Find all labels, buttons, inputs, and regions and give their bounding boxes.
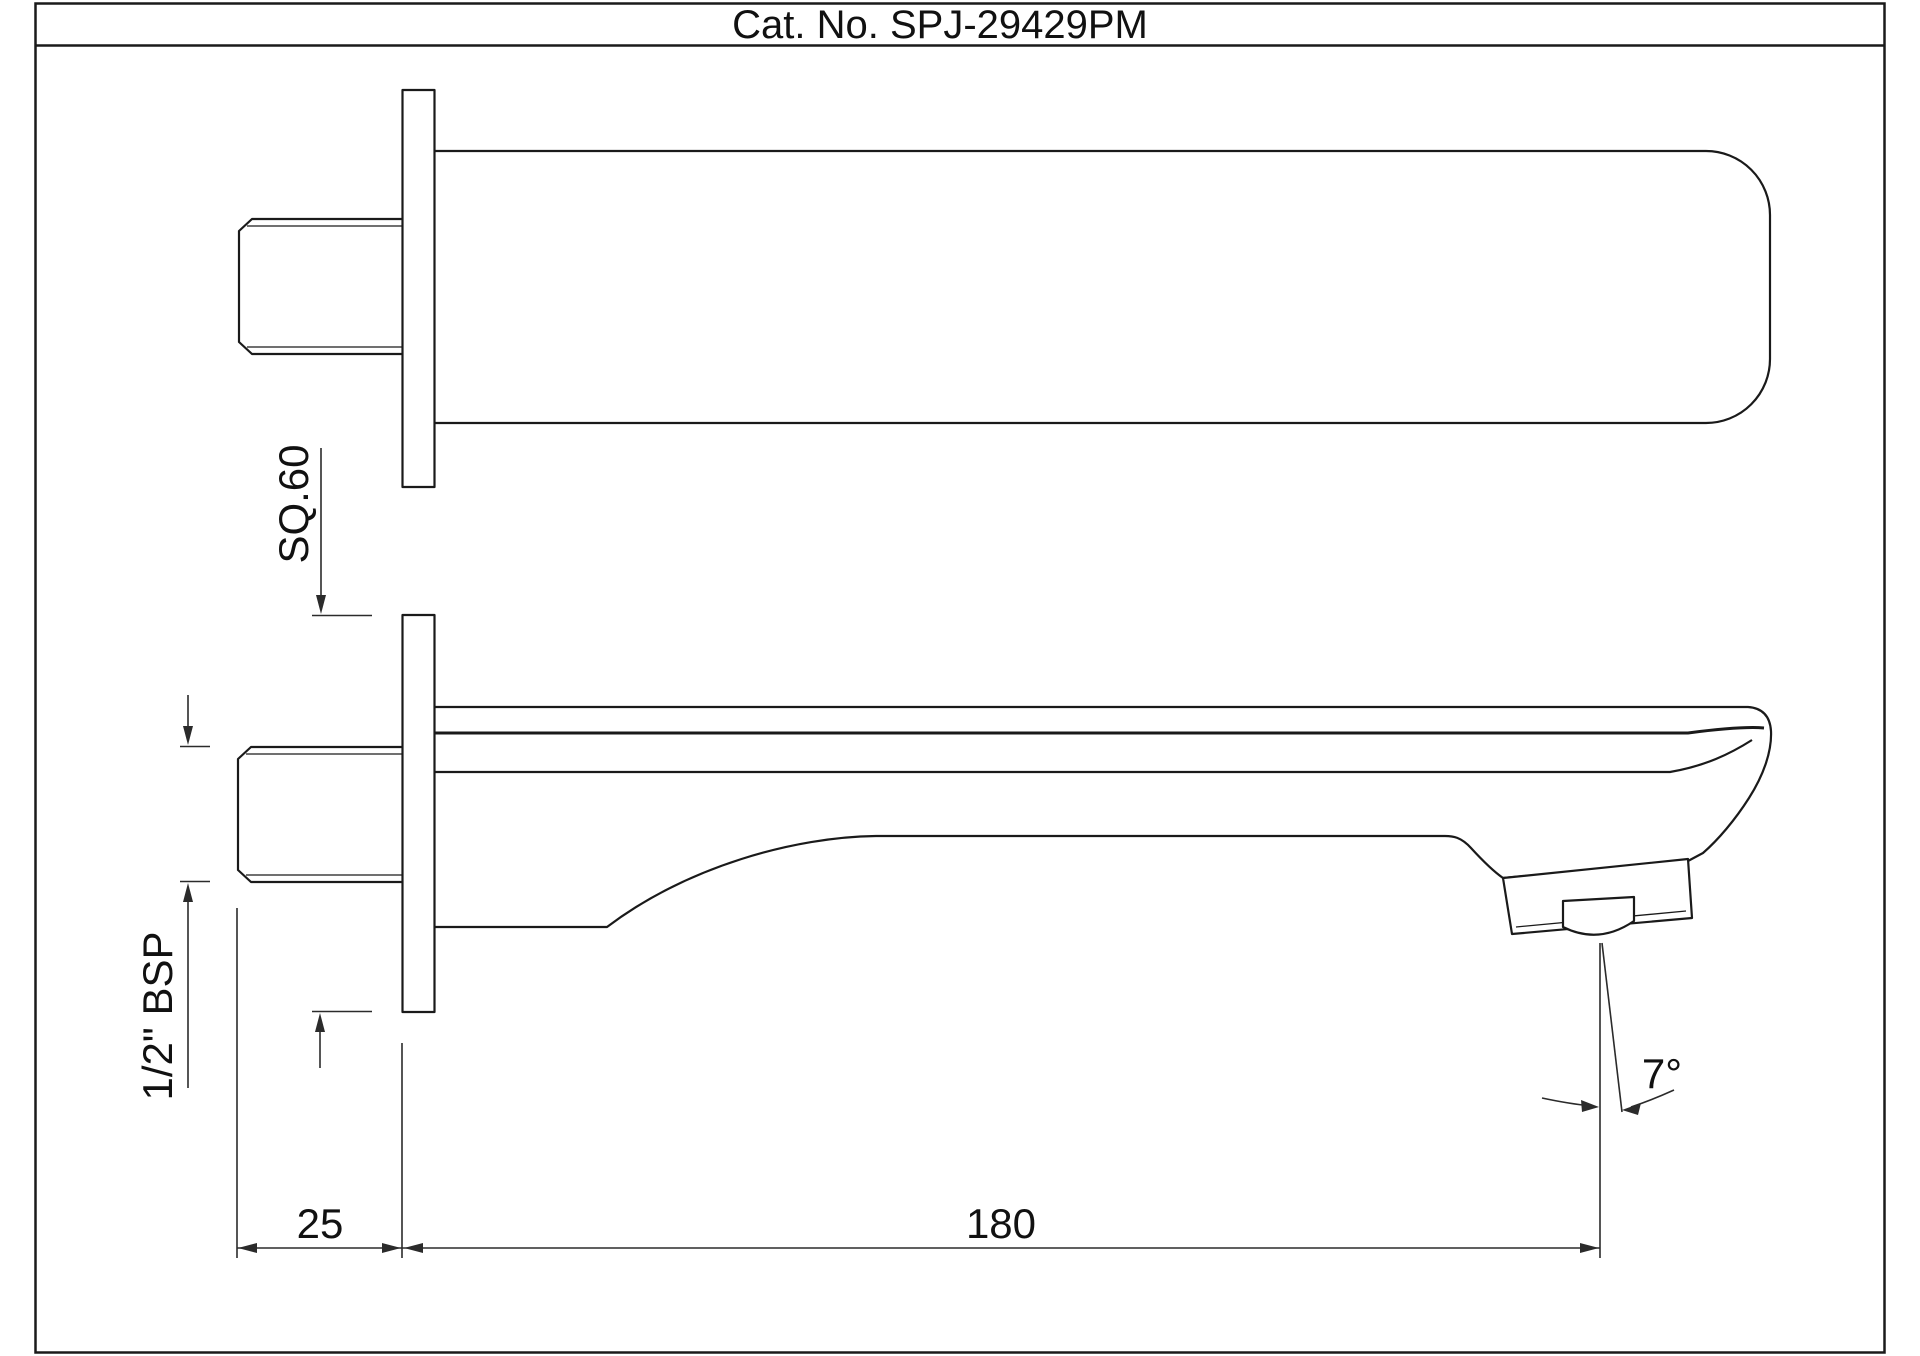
dim-wall-depth-label: 25 <box>297 1200 344 1247</box>
top-view <box>239 90 1770 487</box>
dim-flange-square-label: SQ.60 <box>270 444 317 563</box>
arrow-left-icon <box>238 1243 257 1253</box>
side-view-thread-connector <box>238 747 410 882</box>
side-view-wall-flange <box>403 615 435 1012</box>
top-view-wall-flange <box>403 90 435 487</box>
arrow-up-icon <box>183 883 193 902</box>
dim-spout-reach: 180 <box>402 943 1600 1258</box>
catalog-number-title: Cat. No. SPJ-29429PM <box>732 3 1148 47</box>
dim-thread-size-label: 1/2" BSP <box>134 931 181 1100</box>
side-view <box>238 615 1771 1012</box>
dim-spout-reach-label: 180 <box>966 1200 1036 1247</box>
dim-thread-size: 1/2" BSP <box>134 695 210 1101</box>
top-view-thread-connector <box>239 219 410 354</box>
drawing-sheet: Cat. No. SPJ-29429PM SQ.60 <box>0 0 1920 1356</box>
dim-spray-angle-label: 7° <box>1642 1050 1682 1097</box>
aerator-tab <box>1563 897 1634 935</box>
arrow-left-icon <box>404 1243 423 1253</box>
arrow-down-icon <box>183 726 193 745</box>
drawing-canvas: Cat. No. SPJ-29429PM SQ.60 <box>0 0 1920 1356</box>
dim-spray-angle: 7° <box>1542 943 1682 1115</box>
top-view-spout-body <box>430 151 1770 423</box>
arrow-right-icon <box>1580 1243 1599 1253</box>
arrow-left-icon <box>1622 1103 1641 1115</box>
angle-reference-line <box>1602 943 1622 1112</box>
arrow-right-icon <box>1581 1100 1599 1112</box>
arrow-down-icon <box>316 595 326 614</box>
arrow-right-icon <box>382 1243 401 1253</box>
arrow-up-icon <box>315 1013 325 1032</box>
dim-wall-depth: 25 <box>237 908 402 1258</box>
